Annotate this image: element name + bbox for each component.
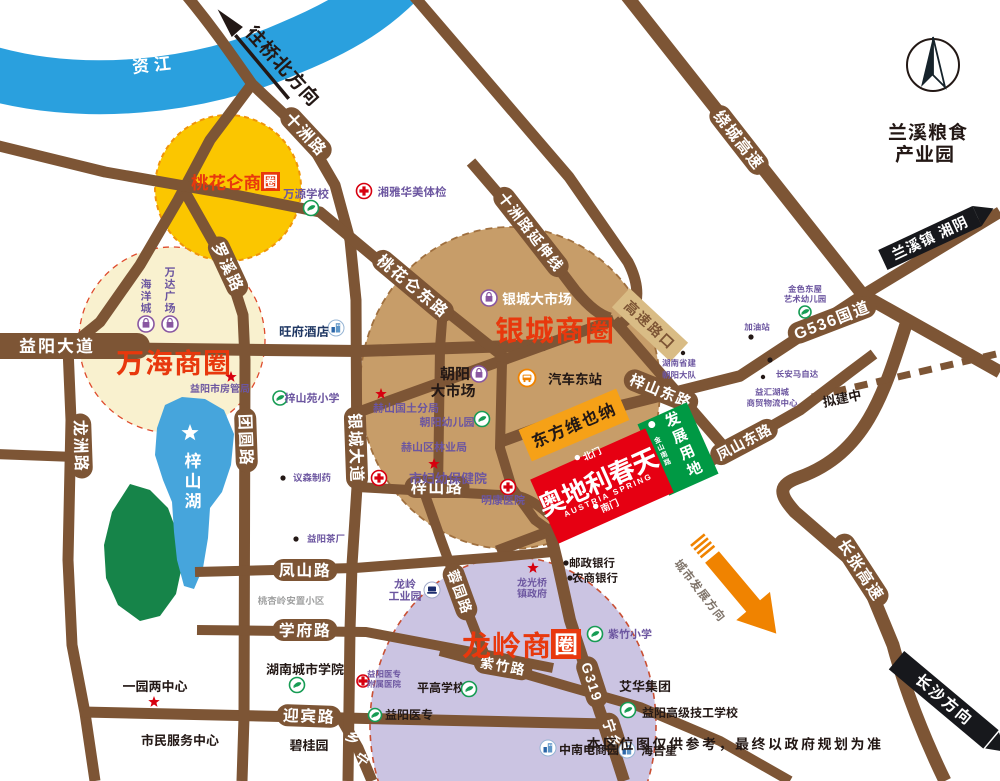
svg-text:赫山区林业局: 赫山区林业局	[401, 439, 467, 455]
svg-text:城: 城	[141, 300, 152, 316]
svg-text:湖南城市学院: 湖南城市学院	[266, 659, 344, 678]
svg-text:迎宾路: 迎宾路	[282, 702, 335, 728]
svg-text:一园两中心: 一园两中心	[122, 676, 187, 695]
svg-text:市民服务中心: 市民服务中心	[141, 730, 219, 749]
svg-text:万源学校: 万源学校	[283, 186, 329, 202]
svg-text:邮政银行: 邮政银行	[569, 555, 615, 571]
svg-text:益阳高级技工学校: 益阳高级技工学校	[642, 704, 738, 721]
svg-text:银城商圈: 银城商圈	[495, 308, 615, 350]
svg-text:圈: 圈	[263, 171, 278, 192]
svg-text:平高学校: 平高学校	[417, 679, 465, 696]
svg-text:湖南省建: 湖南省建	[662, 357, 697, 369]
svg-text:紫竹小学: 紫竹小学	[608, 626, 652, 642]
svg-text:益阳医专: 益阳医专	[385, 706, 433, 723]
svg-text:益阳大道: 益阳大道	[19, 332, 95, 357]
svg-text:益阳市房管局: 益阳市房管局	[190, 380, 250, 395]
svg-text:旺府酒店: 旺府酒店	[279, 321, 329, 340]
svg-text:湘雅华美体检: 湘雅华美体检	[378, 184, 447, 200]
svg-text:艾华集团: 艾华集团	[619, 676, 671, 695]
svg-text:农商银行: 农商银行	[572, 570, 618, 586]
svg-text:议森制药: 议森制药	[293, 470, 331, 484]
svg-text:资 江: 资 江	[131, 49, 172, 78]
svg-text:凤山路: 凤山路	[279, 557, 332, 581]
svg-text:银城大道: 银城大道	[344, 413, 370, 484]
svg-text:湖: 湖	[185, 487, 202, 512]
svg-text:学府路: 学府路	[279, 617, 332, 641]
svg-text:朝阳幼儿园: 朝阳幼儿园	[420, 414, 475, 430]
svg-text:加油站: 加油站	[744, 321, 770, 333]
svg-text:产业园: 产业园	[895, 140, 955, 167]
svg-text:朝阳大队: 朝阳大队	[662, 369, 697, 381]
svg-text:场: 场	[165, 300, 176, 316]
svg-text:镇政府: 镇政府	[517, 585, 547, 600]
svg-text:长安马自达: 长安马自达	[776, 368, 819, 380]
svg-text:明康医院: 明康医院	[481, 492, 525, 508]
svg-text:圈: 圈	[554, 625, 578, 660]
svg-text:商贸物流中心: 商贸物流中心	[746, 397, 798, 409]
svg-text:工业园: 工业园	[389, 588, 422, 604]
svg-text:龙岭商: 龙岭商	[462, 623, 552, 665]
svg-text:大市场: 大市场	[430, 380, 475, 401]
svg-text:本区位图仅供参考，最终以政府规划为准: 本区位图仅供参考，最终以政府规划为准	[587, 734, 884, 754]
svg-text:艺术幼儿园: 艺术幼儿园	[784, 293, 827, 305]
svg-text:桃花仑商: 桃花仑商	[191, 170, 261, 195]
svg-text:桃杏岭安置小区: 桃杏岭安置小区	[258, 593, 325, 607]
svg-text:龙洲路: 龙洲路	[69, 419, 95, 472]
svg-text:梓山苑小学: 梓山苑小学	[285, 390, 340, 406]
svg-text:市妇幼保健院: 市妇幼保健院	[409, 468, 487, 487]
svg-text:益阳茶厂: 益阳茶厂	[307, 531, 345, 545]
svg-text:银城大市场: 银城大市场	[502, 289, 572, 309]
svg-text:碧桂园: 碧桂园	[289, 735, 328, 754]
svg-text:团圆路: 团圆路	[234, 413, 260, 466]
svg-text:汽车东站: 汽车东站	[548, 368, 602, 388]
svg-text:附属医院: 附属医院	[367, 678, 402, 690]
svg-text:万海商圈: 万海商圈	[116, 342, 232, 382]
